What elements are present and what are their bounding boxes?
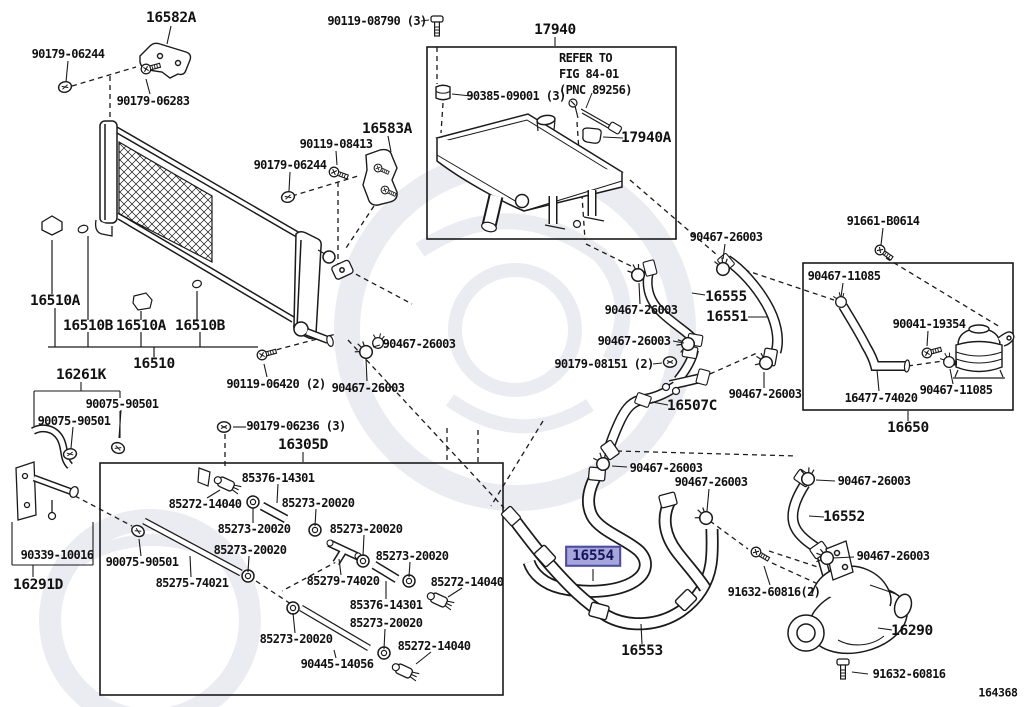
part-label-90467-26003[interactable]: 90467-26003 xyxy=(332,382,405,394)
part-label-90467-11085[interactable]: 90467-11085 xyxy=(808,270,881,282)
part-label-16290[interactable]: 16290 xyxy=(891,624,933,639)
part-label-85273-20020[interactable]: 85273-20020 xyxy=(282,497,355,509)
part-label-16510B[interactable]: 16510B xyxy=(63,319,113,334)
part-label-91661-B0614[interactable]: 91661-B0614 xyxy=(847,215,920,227)
part-label-90467-11085[interactable]: 90467-11085 xyxy=(920,384,993,396)
part-label-90179-06244[interactable]: 90179-06244 xyxy=(254,159,327,171)
note-line-67: (PNC 89256) xyxy=(559,84,632,96)
part-label-17940A[interactable]: 17940A xyxy=(621,131,671,146)
part-label-85275-74021[interactable]: 85275-74021 xyxy=(156,577,229,589)
part-label-85273-20020[interactable]: 85273-20020 xyxy=(218,523,291,535)
part-label-16552[interactable]: 16552 xyxy=(823,510,865,525)
part-label-16551[interactable]: 16551 xyxy=(706,310,748,325)
part-label-16510B[interactable]: 16510B xyxy=(175,319,225,334)
part-label-90385-09001-3-[interactable]: 90385-09001 (3) xyxy=(466,90,565,102)
diagram-code: 164368 xyxy=(978,687,1017,699)
part-label-16510[interactable]: 16510 xyxy=(133,357,175,372)
parts-diagram: 16582A1794016583A17940A165551655116507C1… xyxy=(0,0,1024,707)
part-label-90179-08151-2-[interactable]: 90179-08151 (2) xyxy=(554,358,653,370)
part-labels: 16582A1794016583A17940A165551655116507C1… xyxy=(0,0,1024,707)
part-label-17940[interactable]: 17940 xyxy=(534,23,576,38)
part-label-16553[interactable]: 16553 xyxy=(621,644,663,659)
part-label-16582A[interactable]: 16582A xyxy=(146,11,196,26)
part-label-90041-19354[interactable]: 90041-19354 xyxy=(893,318,966,330)
part-label-91632-60816[interactable]: 91632-60816 xyxy=(873,668,946,680)
part-label-90467-26003[interactable]: 90467-26003 xyxy=(630,462,703,474)
part-label-16261K[interactable]: 16261K xyxy=(56,368,106,383)
part-label-90467-26003[interactable]: 90467-26003 xyxy=(598,335,671,347)
part-label-16510A[interactable]: 16510A xyxy=(116,319,166,334)
part-label-16554[interactable]: 16554 xyxy=(565,546,621,567)
part-label-90339-10016[interactable]: 90339-10016 xyxy=(21,549,94,561)
part-label-85273-20020[interactable]: 85273-20020 xyxy=(350,617,423,629)
part-label-16555[interactable]: 16555 xyxy=(705,290,747,305)
note-line-66: FIG 84-01 xyxy=(559,68,619,80)
part-label-91632-60816-2-[interactable]: 91632-60816(2) xyxy=(728,586,821,598)
part-label-90119-08790-3-[interactable]: 90119-08790 (3) xyxy=(327,15,426,27)
part-label-85272-14040[interactable]: 85272-14040 xyxy=(398,640,471,652)
part-label-16507C[interactable]: 16507C xyxy=(667,399,717,414)
part-label-90179-06236-3-[interactable]: 90179-06236 (3) xyxy=(246,420,345,432)
part-label-90075-90501[interactable]: 90075-90501 xyxy=(86,398,159,410)
part-label-90467-26003[interactable]: 90467-26003 xyxy=(729,388,802,400)
part-label-85273-20020[interactable]: 85273-20020 xyxy=(214,544,287,556)
part-label-90179-06283[interactable]: 90179-06283 xyxy=(117,95,190,107)
part-label-90467-26003[interactable]: 90467-26003 xyxy=(675,476,748,488)
part-label-16291D[interactable]: 16291D xyxy=(13,578,63,593)
part-label-90119-08413[interactable]: 90119-08413 xyxy=(300,138,373,150)
part-label-16583A[interactable]: 16583A xyxy=(362,122,412,137)
part-label-16510A[interactable]: 16510A xyxy=(30,294,80,309)
part-label-90119-06420-2-[interactable]: 90119-06420 (2) xyxy=(226,378,325,390)
part-label-90179-06244[interactable]: 90179-06244 xyxy=(32,48,105,60)
part-label-90467-26003[interactable]: 90467-26003 xyxy=(838,475,911,487)
part-label-90467-26003[interactable]: 90467-26003 xyxy=(383,338,456,350)
part-label-90075-90501[interactable]: 90075-90501 xyxy=(38,415,111,427)
part-label-85273-20020[interactable]: 85273-20020 xyxy=(330,523,403,535)
part-label-90467-26003[interactable]: 90467-26003 xyxy=(605,304,678,316)
part-label-85273-20020[interactable]: 85273-20020 xyxy=(260,633,333,645)
part-label-90467-26003[interactable]: 90467-26003 xyxy=(690,231,763,243)
part-label-16477-74020[interactable]: 16477-74020 xyxy=(845,392,918,404)
part-label-90445-14056[interactable]: 90445-14056 xyxy=(301,658,374,670)
part-label-85272-14040[interactable]: 85272-14040 xyxy=(169,498,242,510)
part-label-85272-14040[interactable]: 85272-14040 xyxy=(431,576,504,588)
part-label-90467-26003[interactable]: 90467-26003 xyxy=(857,550,930,562)
part-label-85376-14301[interactable]: 85376-14301 xyxy=(242,472,315,484)
part-label-85279-74020[interactable]: 85279-74020 xyxy=(307,575,380,587)
part-label-90075-90501[interactable]: 90075-90501 xyxy=(106,556,179,568)
part-label-85273-20020[interactable]: 85273-20020 xyxy=(376,550,449,562)
note-line-65: REFER TO xyxy=(559,52,612,64)
part-label-16305D[interactable]: 16305D xyxy=(278,438,328,453)
part-label-85376-14301[interactable]: 85376-14301 xyxy=(350,599,423,611)
part-label-16650[interactable]: 16650 xyxy=(887,421,929,436)
